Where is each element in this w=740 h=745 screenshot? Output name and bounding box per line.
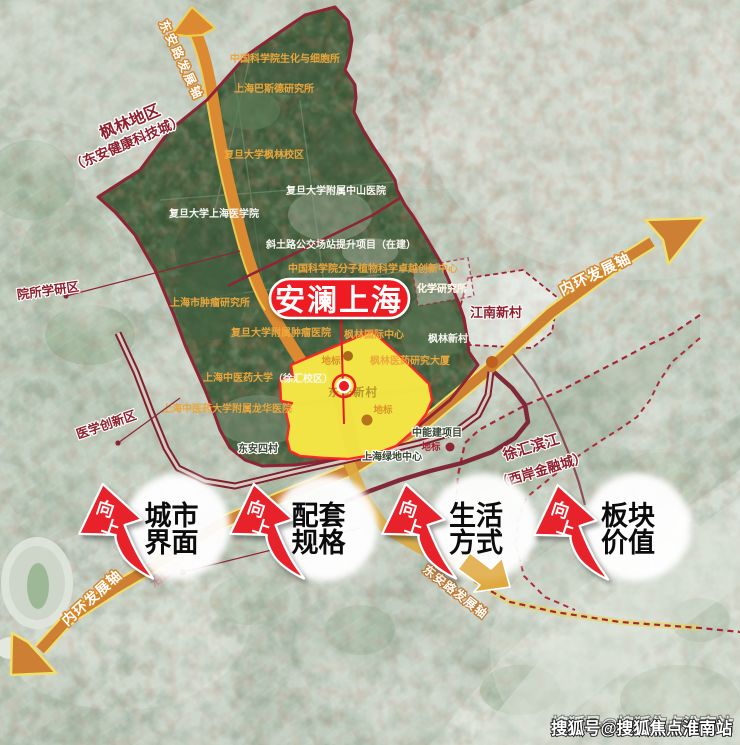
- svg-text:上海巴斯德研究所: 上海巴斯德研究所: [234, 82, 314, 95]
- svg-text:价值: 价值: [601, 528, 655, 558]
- svg-text:中能建项目: 中能建项目: [412, 426, 462, 439]
- svg-text:上海中医药大学: 上海中医药大学: [203, 371, 273, 384]
- svg-text:化学研究所: 化学研究所: [417, 282, 467, 295]
- svg-text:枫林国际中心: 枫林国际中心: [344, 328, 404, 341]
- svg-text:（徐汇校区）: （徐汇校区）: [273, 372, 333, 385]
- svg-text:城市: 城市: [145, 500, 199, 531]
- svg-text:中国科学院生化与细胞所: 中国科学院生化与细胞所: [230, 52, 340, 65]
- svg-text:上海中医药大学附属龙华医院: 上海中医药大学附属龙华医院: [162, 402, 292, 415]
- svg-text:中国科学院分子植物科学卓越创新中心: 中国科学院分子植物科学卓越创新中心: [288, 262, 458, 275]
- svg-text:复旦大学上海医学院: 复旦大学上海医学院: [168, 207, 259, 220]
- svg-text:斜土路公交场站提升项目（在建）: 斜土路公交场站提升项目（在建）: [265, 238, 416, 251]
- svg-text:板块: 板块: [601, 501, 656, 531]
- svg-text:枫林新村: 枫林新村: [428, 332, 468, 345]
- svg-text:上海绿地中心: 上海绿地中心: [362, 450, 422, 463]
- svg-text:生活: 生活: [449, 501, 503, 531]
- svg-text:复旦大学附属中山医院: 复旦大学附属中山医院: [285, 184, 386, 197]
- svg-text:规格: 规格: [292, 528, 347, 558]
- svg-text:复旦大学附属肿瘤医院: 复旦大学附属肿瘤医院: [230, 326, 331, 339]
- svg-text:江南新村: 江南新村: [470, 305, 522, 320]
- svg-text:上海市肿瘤研究所: 上海市肿瘤研究所: [170, 296, 250, 309]
- svg-text:配套: 配套: [292, 501, 346, 531]
- svg-text:地标: 地标: [373, 404, 393, 416]
- svg-text:地标: 地标: [421, 441, 441, 453]
- svg-text:界面: 界面: [145, 528, 199, 558]
- svg-text:方式: 方式: [449, 527, 503, 558]
- svg-text:搜狐号@搜狐焦点淮南站: 搜狐号@搜狐焦点淮南站: [551, 718, 733, 738]
- svg-text:复旦大学枫林校区: 复旦大学枫林校区: [223, 148, 304, 161]
- svg-text:东安四村: 东安四村: [238, 442, 278, 455]
- svg-text:安澜上海: 安澜上海: [275, 285, 403, 318]
- svg-text:枫林医药研究大厦: 枫林医药研究大厦: [370, 354, 451, 367]
- svg-text:地标: 地标: [321, 355, 341, 367]
